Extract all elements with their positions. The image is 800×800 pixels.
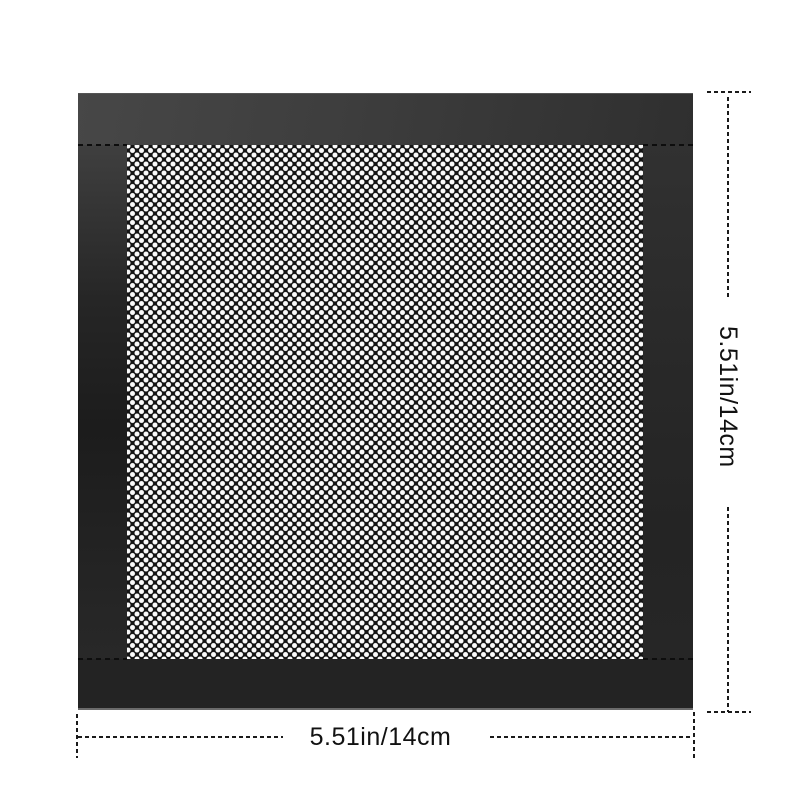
frame-top-bar <box>78 93 693 146</box>
width-dimension-line-right <box>490 736 693 738</box>
height-dimension-line-lower <box>727 507 729 712</box>
frame-seam-top-right <box>643 144 693 146</box>
frame-seam-top-left <box>78 144 127 146</box>
frame-seam-bottom-right <box>643 658 693 660</box>
height-dimension-bottom-tick <box>707 711 751 713</box>
frame-left-rail <box>78 145 127 659</box>
height-dimension-line-upper <box>727 97 729 298</box>
width-dimension-label: 5.51in/14cm <box>293 724 468 750</box>
height-dimension-top-tick <box>707 91 751 93</box>
perforated-mesh-panel <box>127 145 643 659</box>
frame-right-rail <box>643 145 693 659</box>
width-dimension-line-left <box>78 736 283 738</box>
dust-filter-frame <box>78 93 693 710</box>
frame-bottom-bar <box>78 659 693 710</box>
frame-seam-bottom-left <box>78 658 127 660</box>
height-dimension-label: 5.51in/14cm <box>715 326 741 464</box>
product-image-canvas: 5.51in/14cm 5.51in/14cm <box>0 0 800 800</box>
width-dimension-right-extension <box>693 712 695 758</box>
